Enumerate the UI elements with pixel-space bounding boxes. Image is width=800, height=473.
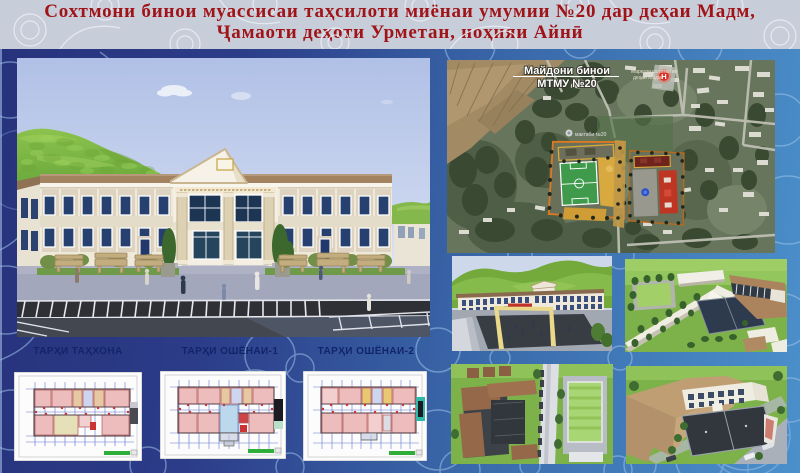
svg-text:МТМУ №20: МТМУ №20 [537,78,596,90]
svg-text:мактаби №20: мактаби №20 [575,132,607,138]
svg-text:Майдони бинои: Майдони бинои [524,65,610,77]
svg-text:деҳаи Мадм: деҳаи Мадм [633,75,662,81]
